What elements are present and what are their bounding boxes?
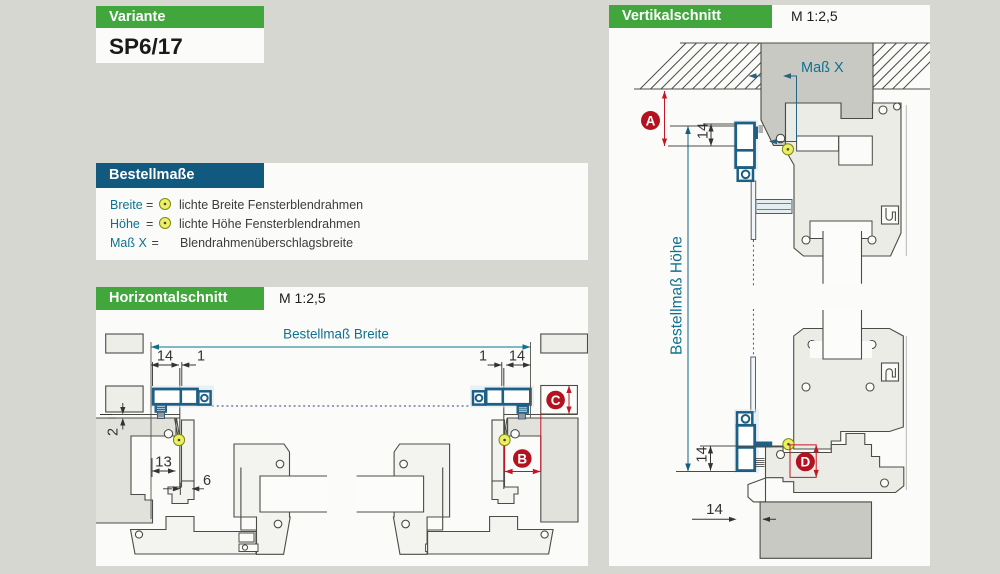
svg-text:14: 14: [509, 349, 525, 365]
svg-text:14: 14: [706, 501, 723, 518]
svg-text:1: 1: [197, 349, 205, 365]
svg-text:14: 14: [695, 446, 711, 462]
svg-text:1: 1: [479, 349, 487, 365]
svg-text:14: 14: [696, 123, 712, 139]
svg-text:6: 6: [203, 473, 211, 489]
svg-text:2: 2: [106, 428, 122, 436]
svg-text:D: D: [801, 455, 811, 470]
svg-text:Maß X: Maß X: [801, 60, 844, 76]
svg-text:13: 13: [155, 454, 172, 471]
svg-text:C: C: [551, 393, 561, 408]
svg-text:Bestellmaß Höhe: Bestellmaß Höhe: [669, 236, 686, 355]
svg-text:B: B: [517, 451, 527, 466]
svg-text:Bestellmaß Breite: Bestellmaß Breite: [283, 327, 389, 342]
svg-text:A: A: [646, 113, 656, 128]
svg-text:14: 14: [157, 349, 173, 365]
